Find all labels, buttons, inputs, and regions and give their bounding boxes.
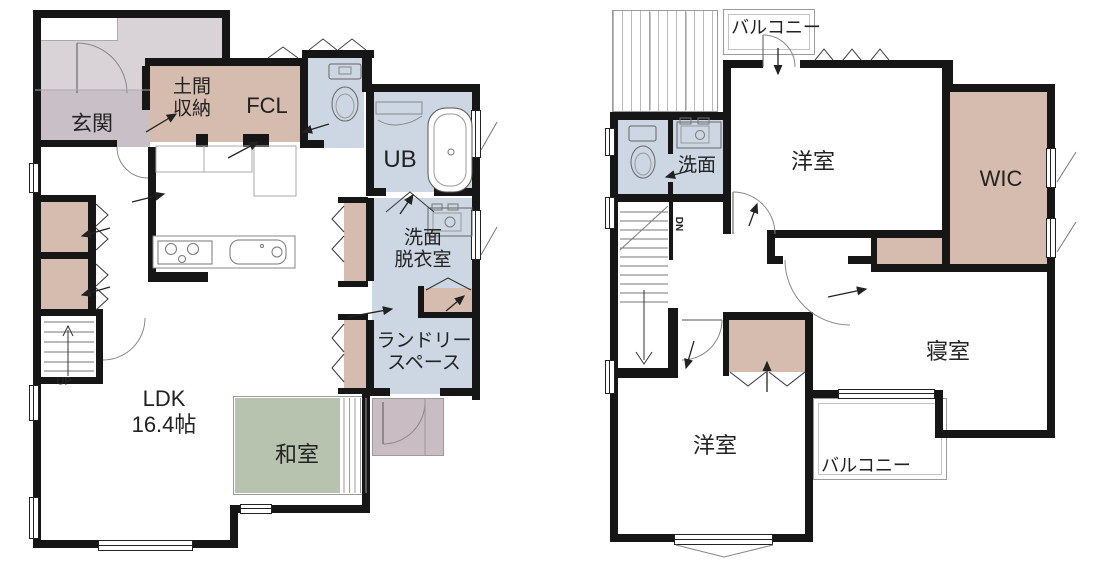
room-label-senmen2: 洗面 bbox=[678, 155, 716, 177]
room-label-wic: WIC bbox=[980, 166, 1023, 192]
room-label-youshitsu-top: 洋室 bbox=[791, 149, 835, 175]
room-label-youshitsu-bottom: 洋室 bbox=[693, 433, 737, 459]
room-label-balcony-bottom: バルコニー bbox=[821, 455, 911, 476]
floor2-details bbox=[0, 0, 1094, 565]
room-label-shinshitsu: 寝室 bbox=[926, 339, 970, 365]
stairs-dn-label: DN bbox=[672, 217, 684, 231]
room-label-washitsu: 和室 bbox=[275, 442, 319, 468]
room-label-balcony-top: バルコニー bbox=[731, 17, 821, 38]
room-label-doma: 土間 収納 bbox=[173, 77, 211, 122]
room-label-ub: UB bbox=[383, 146, 416, 174]
room-label-senmen1: 洗面 脱衣室 bbox=[394, 228, 451, 273]
room-label-laundry: ランドリー スペース bbox=[376, 331, 471, 376]
stairs-up-label: UP bbox=[56, 376, 71, 389]
floorplan-canvas: 玄関 土間 収納 FCL UB 洗面 脱衣室 ランドリー スペース LDK 16… bbox=[0, 0, 1094, 565]
room-label-fcl: FCL bbox=[246, 93, 288, 119]
room-label-genkan: 玄関 bbox=[71, 113, 113, 138]
room-label-ldk: LDK 16.4帖 bbox=[132, 386, 197, 438]
